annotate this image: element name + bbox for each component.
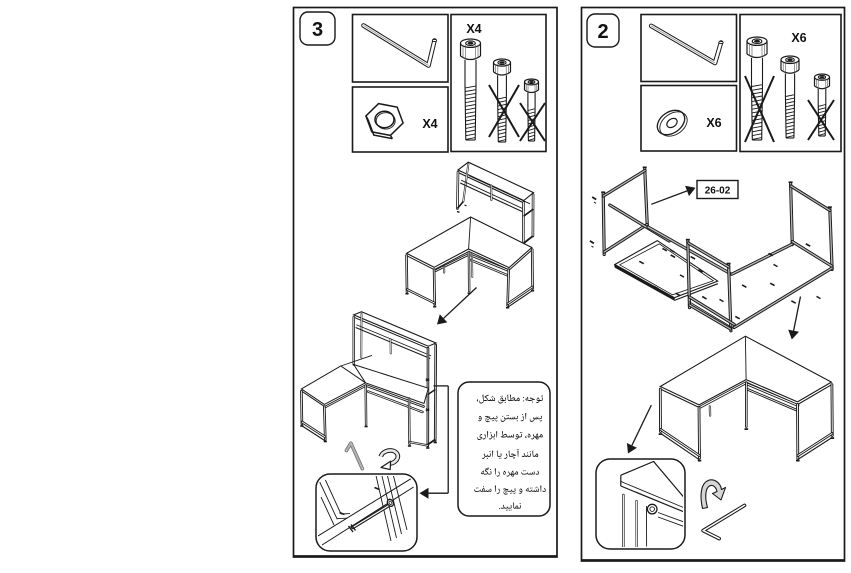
svg-text:2: 2 <box>597 21 608 43</box>
svg-text:X6: X6 <box>706 116 721 130</box>
svg-text:X4: X4 <box>466 22 481 36</box>
svg-text:X4: X4 <box>422 117 437 131</box>
svg-text:X6: X6 <box>791 31 806 45</box>
svg-text:3: 3 <box>312 19 323 41</box>
svg-text:26-02: 26-02 <box>705 186 731 197</box>
